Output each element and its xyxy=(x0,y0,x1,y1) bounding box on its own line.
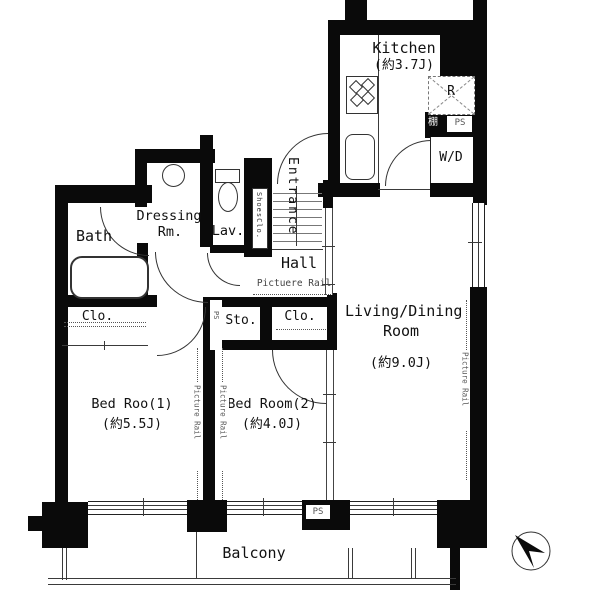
wall-segment xyxy=(203,340,337,350)
window-tick xyxy=(468,242,482,243)
entrance-label: Entrance xyxy=(284,157,299,236)
bed2-size-label: (約4.0J) xyxy=(226,418,318,433)
dressing-label2: Rm. xyxy=(150,225,190,241)
closet-rail-line xyxy=(64,322,146,323)
balcony-edge-line xyxy=(48,578,456,579)
bathtub xyxy=(70,256,149,299)
door-arc-dressing xyxy=(155,252,208,303)
closet-rail-line xyxy=(64,326,146,327)
closet-tick xyxy=(104,341,105,350)
ps-top-label: PS xyxy=(449,118,471,128)
threshold-line xyxy=(378,189,430,190)
washbasin xyxy=(162,164,185,187)
picture-rail-line xyxy=(253,294,333,295)
closet-right-label: Clo. xyxy=(274,310,326,325)
wall-segment xyxy=(135,149,147,207)
burner-icon xyxy=(361,91,375,105)
door-arc-kitchen xyxy=(385,140,431,186)
toilet-tank xyxy=(215,169,240,183)
bath-label: Bath xyxy=(68,228,120,245)
window-tick xyxy=(263,498,264,516)
window xyxy=(227,501,302,515)
door-arc-lav xyxy=(207,253,240,286)
picture-rail-bed2-label: Picture Rail xyxy=(218,385,227,439)
ps-bottom-label: PS xyxy=(306,507,330,517)
threshold-line xyxy=(272,249,323,250)
living-label2: Room xyxy=(345,323,457,340)
kitchen-size-label: (約3.7J) xyxy=(358,59,450,74)
wall-segment xyxy=(323,180,333,208)
living-size-label: (約9.0J) xyxy=(345,356,457,372)
lav-label: Lav. xyxy=(208,224,248,240)
door-line-bed2-living xyxy=(326,350,334,500)
wall-pillar xyxy=(187,500,227,532)
picture-rail-hall-label: Pictuere Rail xyxy=(252,279,336,290)
closet-front-line xyxy=(62,345,148,346)
balcony-edge-line xyxy=(48,584,456,585)
bed2-label: Bed Room(2) xyxy=(226,397,318,413)
balcony-divider xyxy=(196,532,197,579)
balcony-divider xyxy=(415,548,416,579)
stove xyxy=(346,76,378,114)
closet-rail-line xyxy=(276,329,326,330)
balcony-divider xyxy=(62,548,63,580)
balcony-divider xyxy=(352,548,353,579)
balcony-divider xyxy=(66,548,67,580)
shelf-label: 棚 xyxy=(428,117,442,129)
balcony-divider xyxy=(411,548,412,579)
bed1-label: Bed Roo(1) xyxy=(88,397,176,413)
storage-label: Sto. xyxy=(222,314,260,329)
window-tick xyxy=(143,498,144,516)
wall-pillar xyxy=(28,516,42,531)
floor-plan: R 棚 PS W/D ShoesClo. Entrance Hall Pictu… xyxy=(0,0,600,600)
wall-pillar xyxy=(42,502,88,548)
balcony-label: Balcony xyxy=(208,545,300,562)
wall-segment xyxy=(345,0,367,22)
bed1-size-label: (約5.5J) xyxy=(88,418,176,433)
hall-label: Hall xyxy=(270,255,328,272)
refrigerator-label: R xyxy=(432,85,470,100)
sink xyxy=(345,134,375,180)
wall-pillar xyxy=(437,500,487,548)
wall-segment xyxy=(328,20,340,197)
door-arc-bed1 xyxy=(157,307,206,356)
wall-segment xyxy=(244,158,272,188)
door-tick xyxy=(323,394,336,395)
window-tick xyxy=(393,498,394,516)
picture-rail-bed1-label: Picture Rail xyxy=(192,385,201,439)
window xyxy=(472,203,485,287)
compass-north-icon xyxy=(508,528,554,574)
wall-segment xyxy=(470,287,487,502)
ps-shaft xyxy=(210,300,222,350)
kitchen-label: Kitchen xyxy=(358,40,450,57)
toilet-bowl xyxy=(218,182,238,212)
picture-rail-living-label: Picture Rail xyxy=(460,352,469,406)
door-tick xyxy=(322,246,335,247)
washer-dryer-label: W/D xyxy=(430,151,472,166)
dressing-label: Dressing xyxy=(136,209,202,225)
ps-mid-label: PS xyxy=(212,311,220,319)
window xyxy=(88,501,187,515)
wall-segment xyxy=(430,183,487,197)
living-label: Living/Dining xyxy=(345,303,457,320)
shoes-closet-label: ShoesClo. xyxy=(255,192,263,239)
door-tick xyxy=(323,442,336,443)
balcony-divider xyxy=(348,548,349,579)
wall-segment xyxy=(203,343,215,500)
